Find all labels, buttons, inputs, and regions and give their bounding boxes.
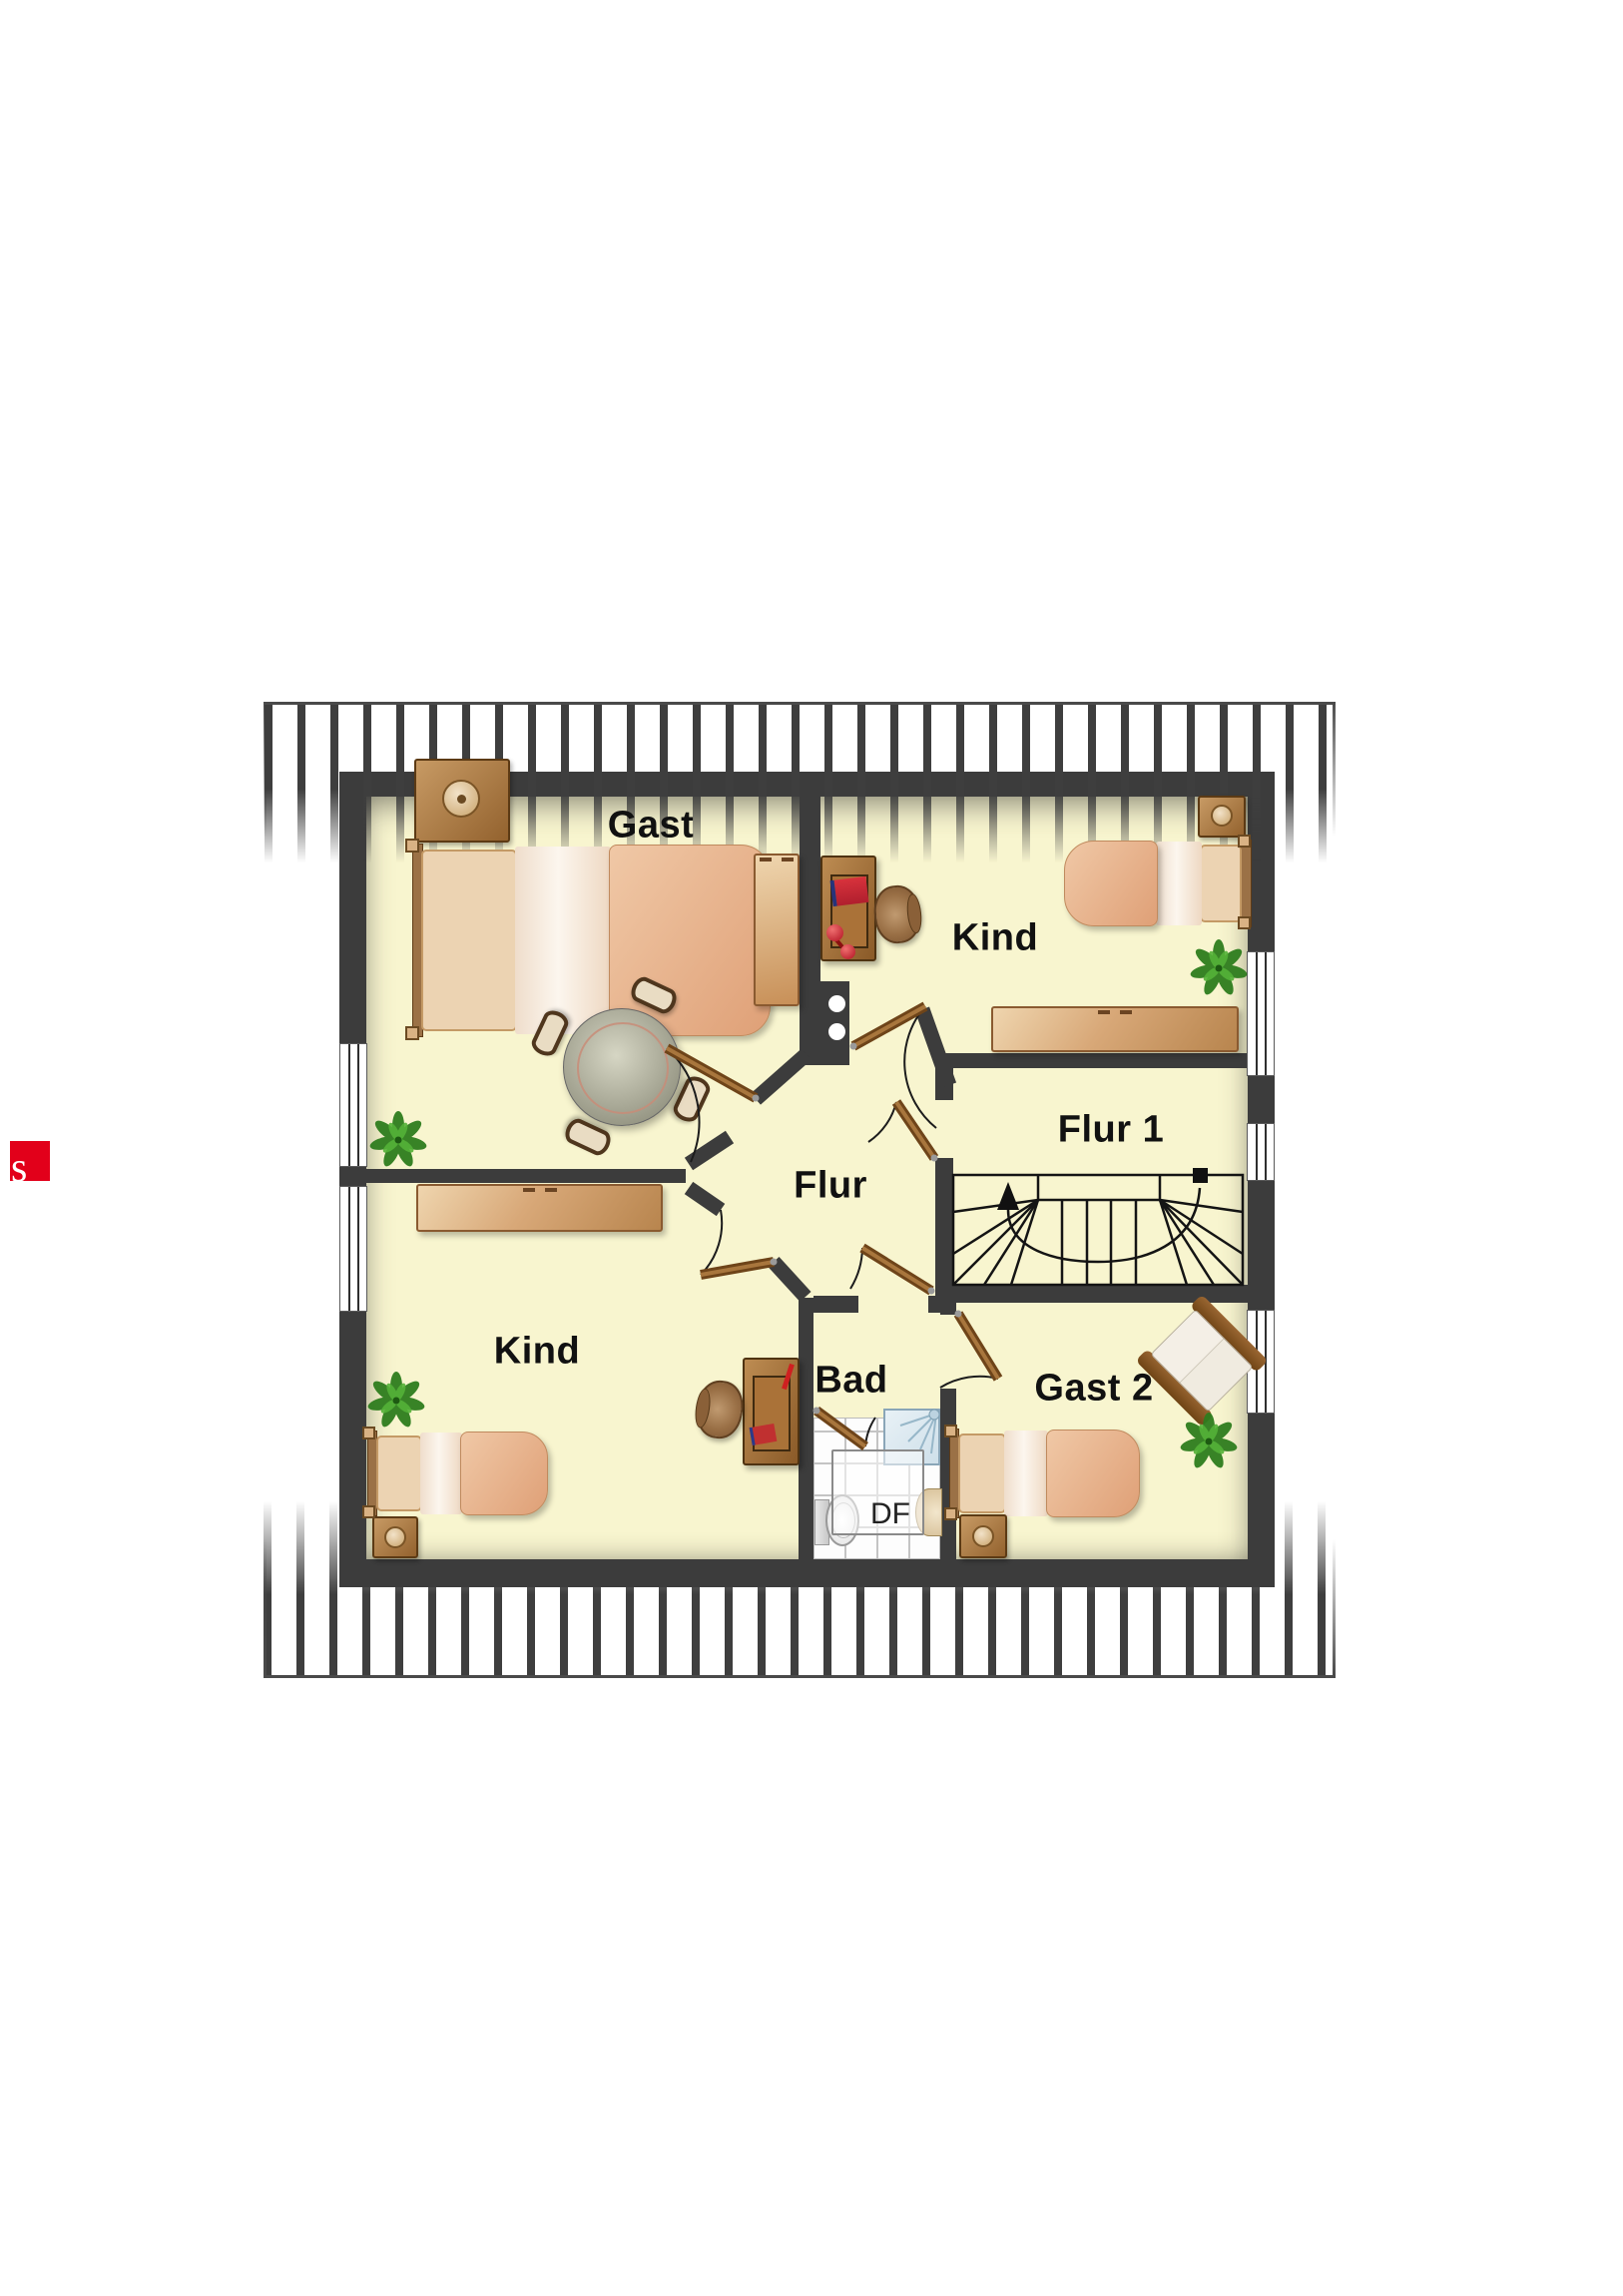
bed-knob (1238, 835, 1251, 848)
logo-s: s (10, 1141, 50, 1181)
bed-mattress (1200, 845, 1242, 922)
sideboard (416, 1184, 663, 1232)
bed-knob (1238, 916, 1251, 929)
bedside-knob (1211, 805, 1233, 827)
roof-hatch-edge (264, 1539, 267, 1675)
wall-flur1-left (935, 1068, 953, 1100)
bed-sheet (420, 1433, 462, 1514)
room-label-bad: Bad (814, 1360, 887, 1403)
window-left-gast (339, 1043, 367, 1167)
wall-kindtop-flur1-divider (935, 1053, 1248, 1068)
window-right-kindtop (1247, 951, 1275, 1076)
bedside-knob (972, 1525, 994, 1547)
bed-mattress (376, 1435, 422, 1511)
bedside-knob (384, 1526, 406, 1548)
wall-flur1-left (935, 1158, 953, 1303)
room-label-kind-bottom: Kind (494, 1331, 580, 1374)
molecule-ball (840, 944, 855, 959)
roof-hatch-edge (1333, 1539, 1336, 1675)
floorplan-page: s (0, 0, 1623, 2296)
wall-gast-kind-divider (349, 1169, 686, 1183)
molecule-ball (826, 924, 843, 941)
bed-knob (362, 1505, 375, 1518)
window-left-kind (339, 1186, 367, 1312)
logo-letter: s (11, 1147, 27, 1189)
bed-blanket (1064, 841, 1158, 926)
bed-knob (405, 839, 419, 853)
room-label-gast-2: Gast 2 (1034, 1368, 1153, 1411)
bed-blanket (460, 1432, 548, 1515)
chimney (800, 981, 849, 1065)
bed-blanket (609, 845, 771, 1036)
wall-bad-corridor (813, 1296, 858, 1313)
bed-sheet (515, 847, 611, 1034)
room-label-flur: Flur (794, 1165, 867, 1208)
red-book (830, 876, 869, 906)
wall-bad-gast2-divider (940, 1303, 956, 1315)
bed-blanket (1046, 1430, 1140, 1517)
bed-mattress (421, 850, 517, 1031)
bed-knob (944, 1425, 957, 1437)
bed-mattress (958, 1434, 1006, 1513)
sideboard (991, 1006, 1239, 1052)
wall-table (754, 854, 800, 1006)
window-right-flur1 (1247, 1123, 1275, 1181)
wall-kind-bad-divider (799, 1298, 813, 1585)
bed-headboard (1241, 840, 1252, 927)
room-label-gast: Gast (608, 805, 694, 848)
bed-knob (944, 1507, 957, 1520)
bed-sheet (1156, 842, 1202, 925)
bedside-knob-dot (457, 795, 466, 804)
room-label-flur-1: Flur 1 (1058, 1109, 1164, 1152)
bed-knob (405, 1026, 419, 1040)
skylight-label: DF (870, 1497, 910, 1531)
bed-sheet (1004, 1431, 1048, 1516)
chimney-flue (828, 1023, 845, 1040)
chimney-flue (828, 995, 845, 1012)
round-table-ring (577, 1022, 669, 1114)
bed-knob (362, 1427, 375, 1439)
room-label-kind-top: Kind (952, 917, 1038, 960)
